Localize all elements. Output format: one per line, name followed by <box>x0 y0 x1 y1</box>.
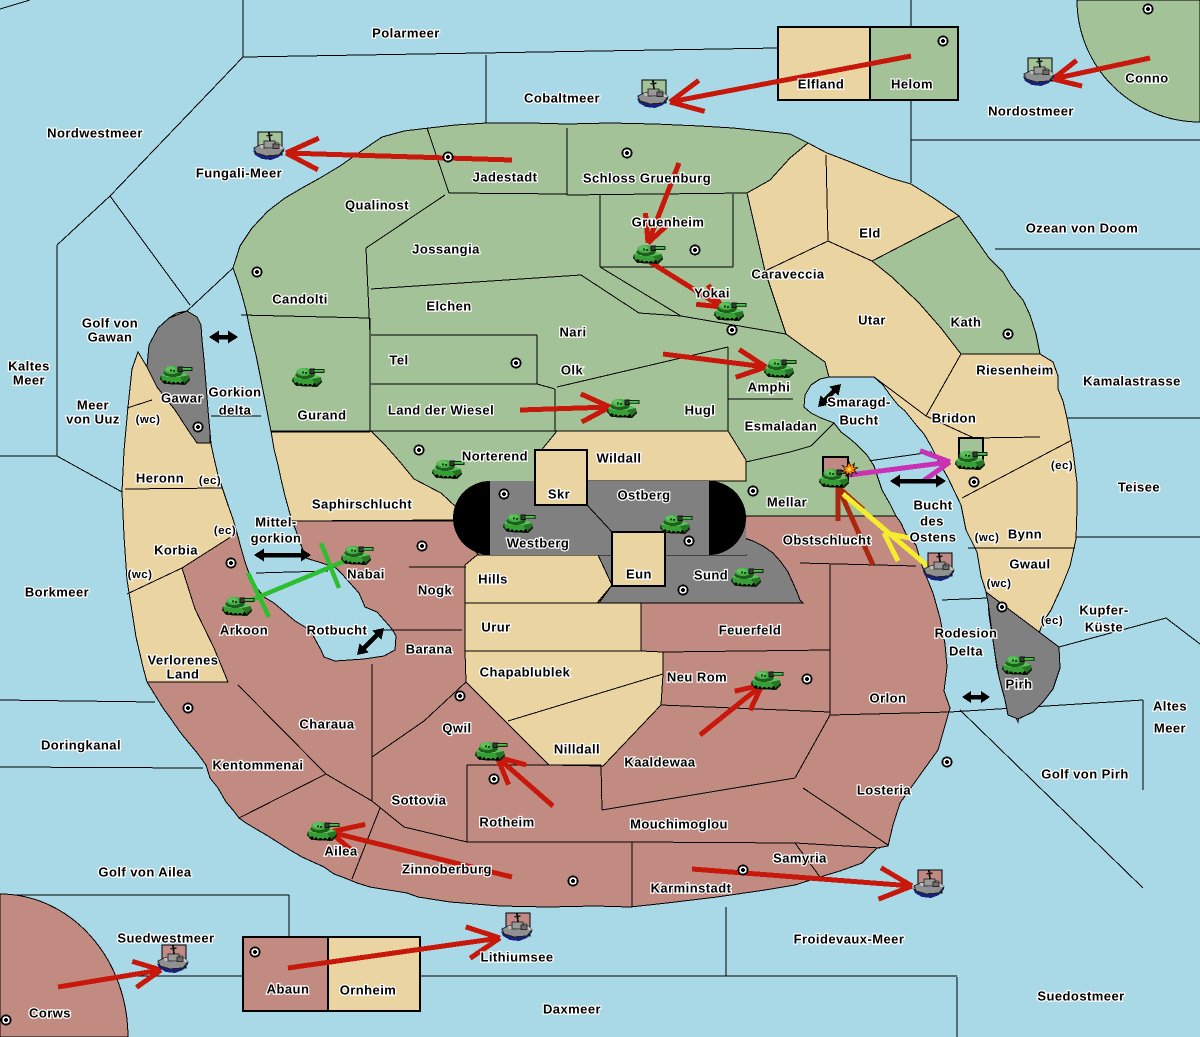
svg-text:Mittel-: Mittel- <box>255 515 296 530</box>
svg-text:Pirh: Pirh <box>1005 677 1032 692</box>
svg-text:Ozean von Doom: Ozean von Doom <box>1026 221 1138 236</box>
svg-text:Kaaldewaa: Kaaldewaa <box>624 755 696 770</box>
svg-text:Gwaul: Gwaul <box>1009 557 1050 572</box>
svg-text:Meer: Meer <box>13 373 45 388</box>
svg-text:Bridon: Bridon <box>932 411 977 426</box>
svg-text:Korbia: Korbia <box>154 543 198 558</box>
svg-text:Utar: Utar <box>858 313 886 328</box>
svg-text:Saphirschlucht: Saphirschlucht <box>312 497 412 512</box>
svg-text:Westberg: Westberg <box>507 536 570 551</box>
svg-text:Conno: Conno <box>1125 71 1168 86</box>
svg-text:Bucht: Bucht <box>913 498 952 513</box>
svg-text:Olk: Olk <box>561 363 584 378</box>
svg-text:Suedwestmeer: Suedwestmeer <box>117 931 214 946</box>
svg-text:Nogk: Nogk <box>418 583 453 598</box>
svg-text:Golf von Pirh: Golf von Pirh <box>1041 767 1128 782</box>
svg-text:(ec): (ec) <box>199 475 221 487</box>
svg-text:Nari: Nari <box>559 325 586 340</box>
svg-text:Elfland: Elfland <box>798 77 845 92</box>
svg-text:Sottovia: Sottovia <box>392 793 447 808</box>
svg-text:Orlon: Orlon <box>870 691 907 706</box>
svg-text:Losteria: Losteria <box>857 783 911 798</box>
svg-text:Arkoon: Arkoon <box>220 623 268 638</box>
svg-text:Mouchimoglou: Mouchimoglou <box>630 817 728 832</box>
svg-text:Land der Wiesel: Land der Wiesel <box>388 403 494 418</box>
svg-text:Caraveccia: Caraveccia <box>751 267 824 282</box>
svg-text:Doringkanal: Doringkanal <box>41 738 121 753</box>
svg-text:Kamalastrasse: Kamalastrasse <box>1083 374 1181 389</box>
svg-text:Hills: Hills <box>478 572 508 587</box>
svg-text:Suedostmeer: Suedostmeer <box>1037 989 1124 1004</box>
svg-text:Kaltes: Kaltes <box>8 359 50 374</box>
svg-text:Schloss Gruenburg: Schloss Gruenburg <box>583 171 711 186</box>
svg-text:Chapablublek: Chapablublek <box>480 665 571 680</box>
svg-text:Froidevaux-Meer: Froidevaux-Meer <box>794 932 905 947</box>
svg-text:Daxmeer: Daxmeer <box>543 1002 601 1017</box>
svg-text:(wc): (wc) <box>136 414 161 426</box>
svg-text:Feuerfeld: Feuerfeld <box>719 623 782 638</box>
svg-text:Norterend: Norterend <box>462 449 528 464</box>
svg-text:Gawar: Gawar <box>161 391 203 406</box>
svg-text:(ec): (ec) <box>1051 460 1073 472</box>
svg-text:Verlorenes: Verlorenes <box>148 653 219 668</box>
svg-text:Skr: Skr <box>548 487 570 502</box>
svg-text:delta: delta <box>219 403 252 418</box>
svg-text:Fungali-Meer: Fungali-Meer <box>196 166 282 181</box>
svg-text:des: des <box>920 514 944 529</box>
svg-text:Kupfer-: Kupfer- <box>1079 603 1128 618</box>
svg-text:Ailea: Ailea <box>324 844 358 859</box>
svg-text:Borkmeer: Borkmeer <box>25 585 89 600</box>
svg-text:Golf von: Golf von <box>82 316 138 331</box>
svg-text:Helom: Helom <box>891 77 933 92</box>
svg-text:Eld: Eld <box>859 226 881 241</box>
svg-text:Esmaladan: Esmaladan <box>745 419 818 434</box>
svg-text:Land: Land <box>167 667 200 682</box>
svg-text:Riesenheim: Riesenheim <box>976 363 1053 378</box>
svg-text:Altes: Altes <box>1153 699 1187 714</box>
svg-text:Kath: Kath <box>951 315 982 330</box>
svg-text:Urur: Urur <box>481 620 510 635</box>
svg-text:Hugl: Hugl <box>685 403 716 418</box>
svg-text:Polarmeer: Polarmeer <box>372 26 440 41</box>
svg-text:Küste: Küste <box>1085 620 1123 635</box>
svg-text:Gurand: Gurand <box>298 408 347 423</box>
svg-text:Sund: Sund <box>694 568 728 583</box>
svg-text:gorkion: gorkion <box>251 531 302 546</box>
svg-text:Rotheim: Rotheim <box>479 815 534 830</box>
svg-text:(wc): (wc) <box>975 532 1000 544</box>
svg-text:Meer: Meer <box>1154 721 1186 736</box>
svg-text:Qwil: Qwil <box>442 721 471 736</box>
svg-text:Smaragd-: Smaragd- <box>827 395 891 410</box>
svg-text:Wildall: Wildall <box>597 451 642 466</box>
svg-text:Yokai: Yokai <box>694 286 730 301</box>
svg-text:Tel: Tel <box>389 353 408 368</box>
svg-text:(wc): (wc) <box>128 569 153 581</box>
svg-text:Nordostmeer: Nordostmeer <box>988 104 1074 119</box>
svg-text:Abaun: Abaun <box>267 982 310 997</box>
svg-text:von Uuz: von Uuz <box>66 412 120 427</box>
svg-text:Zinnoberburg: Zinnoberburg <box>402 862 492 877</box>
svg-text:Jossangia: Jossangia <box>412 242 480 257</box>
svg-text:Rodesion: Rodesion <box>935 626 998 641</box>
svg-text:Elchen: Elchen <box>426 299 471 314</box>
svg-text:(wc): (wc) <box>987 578 1012 590</box>
svg-text:Meer: Meer <box>77 398 109 413</box>
svg-text:Qualinost: Qualinost <box>345 198 409 213</box>
svg-text:Barana: Barana <box>406 642 453 657</box>
svg-text:Samyria: Samyria <box>773 851 827 866</box>
svg-text:Ostberg: Ostberg <box>618 488 671 503</box>
svg-text:Lithiumsee: Lithiumsee <box>480 950 553 965</box>
svg-text:Ostens: Ostens <box>910 530 957 545</box>
svg-text:Kentommenai: Kentommenai <box>213 758 304 773</box>
svg-text:Mellar: Mellar <box>767 495 807 510</box>
svg-text:Nilldall: Nilldall <box>554 742 600 757</box>
svg-text:Gruenheim: Gruenheim <box>632 215 705 230</box>
svg-text:Corws: Corws <box>29 1006 71 1021</box>
svg-text:Eun: Eun <box>626 567 652 582</box>
svg-text:Golf von Ailea: Golf von Ailea <box>98 865 192 880</box>
svg-text:Bucht: Bucht <box>839 413 878 428</box>
svg-text:Teisee: Teisee <box>1118 480 1160 495</box>
svg-text:Gawan: Gawan <box>88 330 133 345</box>
svg-text:Neu Rom: Neu Rom <box>667 670 727 685</box>
svg-text:(ec): (ec) <box>214 525 236 537</box>
svg-text:Delta: Delta <box>949 644 983 659</box>
svg-text:Ornheim: Ornheim <box>340 983 397 998</box>
svg-text:Charaua: Charaua <box>299 717 354 732</box>
svg-text:Jadestadt: Jadestadt <box>473 170 538 185</box>
svg-text:Gorkion: Gorkion <box>209 385 262 400</box>
svg-text:Candolti: Candolti <box>272 292 328 307</box>
svg-text:Nordwestmeer: Nordwestmeer <box>47 126 143 141</box>
svg-text:Bynn: Bynn <box>1008 527 1042 542</box>
svg-text:Karminstadt: Karminstadt <box>651 881 732 896</box>
svg-text:Cobaltmeer: Cobaltmeer <box>524 91 600 106</box>
svg-text:Rotbucht: Rotbucht <box>307 623 368 638</box>
svg-text:(ec): (ec) <box>1041 615 1063 627</box>
svg-text:Heronn: Heronn <box>136 471 184 486</box>
svg-text:Nabai: Nabai <box>347 567 385 582</box>
svg-text:Obstschlucht: Obstschlucht <box>783 533 872 548</box>
svg-text:Amphi: Amphi <box>748 380 791 395</box>
